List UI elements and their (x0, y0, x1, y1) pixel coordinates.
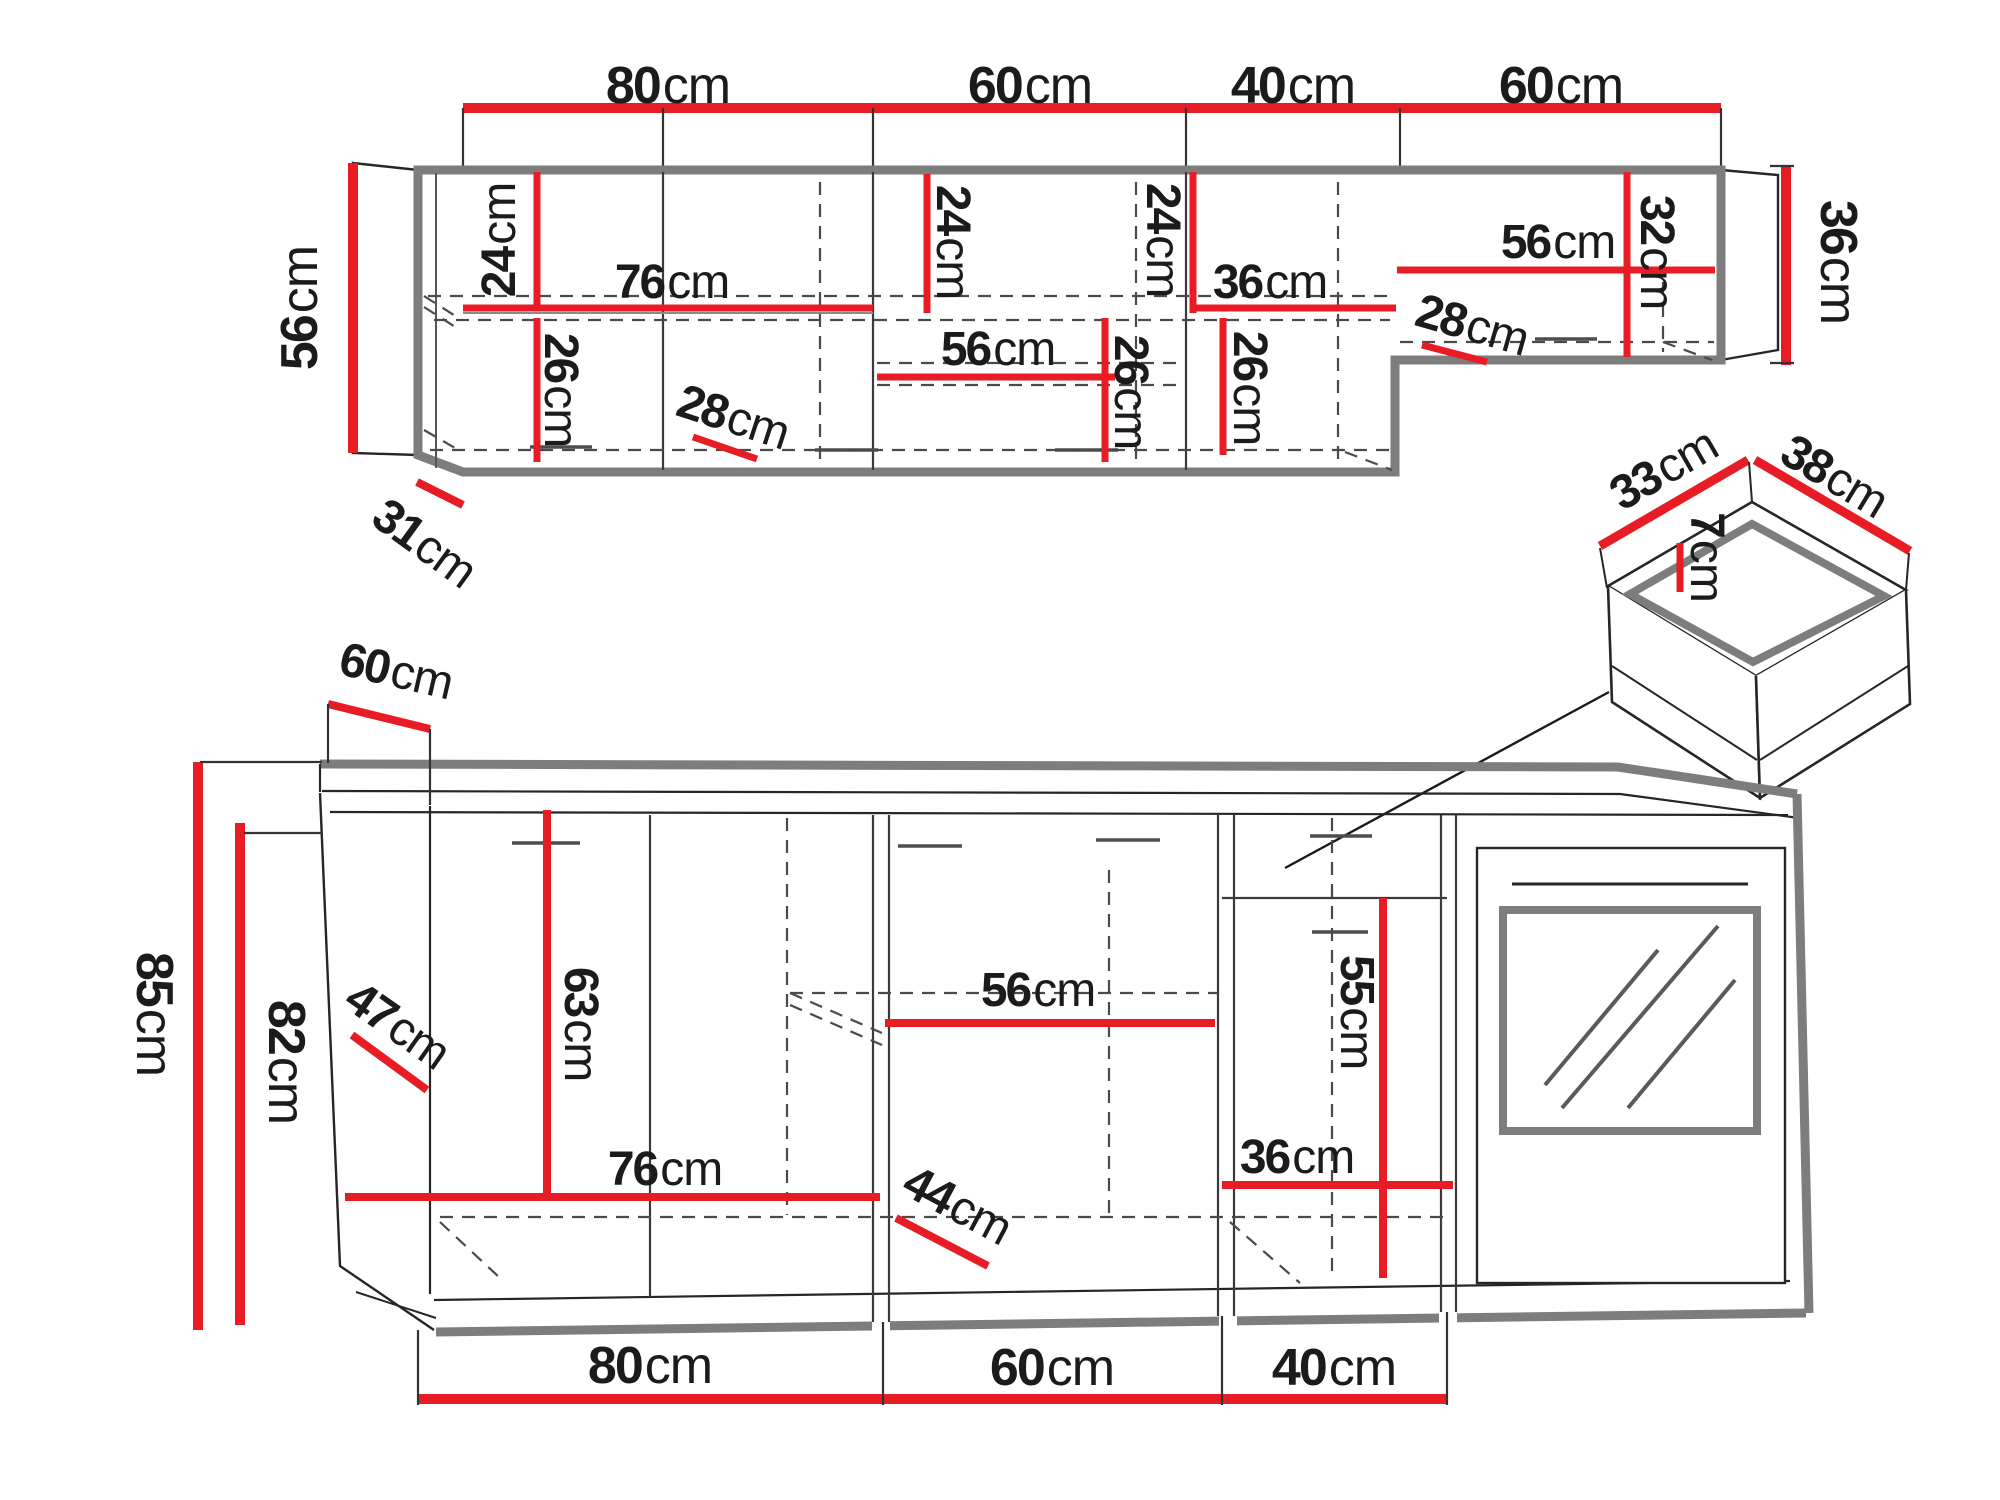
dim-label-upper-24-b: 24cm (928, 185, 976, 299)
dim-label-top-40: 40cm (1231, 60, 1355, 112)
dim-label-lower-82: 82cm (260, 1000, 312, 1124)
dim-label-lower-55: 55cm (1332, 955, 1380, 1069)
dim-label-lower-63: 63cm (556, 967, 604, 1081)
dim-label-lower-36: 36cm (1240, 1134, 1354, 1182)
dim-label-lower-85: 85cm (128, 952, 180, 1076)
dim-label-lower-76: 76cm (608, 1146, 722, 1194)
dim-label-top-60b: 60cm (1499, 60, 1623, 112)
dim-label-lower-56: 56cm (981, 967, 1095, 1015)
drawer-detail (1285, 460, 1910, 868)
dim-label-bottom-80: 80cm (588, 1340, 712, 1392)
dim-label-upper-26-c: 26cm (1225, 331, 1273, 445)
oven (1477, 848, 1785, 1283)
dim-label-upper-left-56: 56cm (274, 246, 326, 370)
dim-label-upper-26-a: 26cm (536, 333, 584, 447)
dim-label-upper-56-mid: 56cm (941, 326, 1055, 374)
dim-label-drawer-7: 7cm (1682, 512, 1730, 602)
kitchen-dimension-diagram: 80cm 60cm 40cm 60cm 56cm 24cm 76cm 26cm … (0, 0, 2000, 1500)
dim-label-upper-32: 32cm (1632, 195, 1680, 309)
dim-label-upper-26-b: 26cm (1106, 335, 1154, 449)
drawer-leader-line (1285, 692, 1609, 868)
dim-label-top-60a: 60cm (968, 60, 1092, 112)
dim-label-bottom-40: 40cm (1272, 1342, 1396, 1394)
dim-label-upper-76: 76cm (615, 259, 729, 307)
dim-label-upper-36-inner: 36cm (1213, 259, 1327, 307)
dim-label-bottom-60: 60cm (990, 1342, 1114, 1394)
dim-label-upper-right-36: 36cm (1812, 200, 1864, 324)
oven-window (1503, 910, 1757, 1131)
dim-label-upper-24-c: 24cm (1138, 183, 1186, 297)
dim-label-upper-24-a: 24cm (476, 183, 524, 297)
diagram-linework (0, 0, 2000, 1500)
top-dimension-line (463, 108, 1721, 168)
dim-label-top-80: 80cm (606, 60, 730, 112)
dim-label-upper-56-right: 56cm (1501, 219, 1615, 267)
